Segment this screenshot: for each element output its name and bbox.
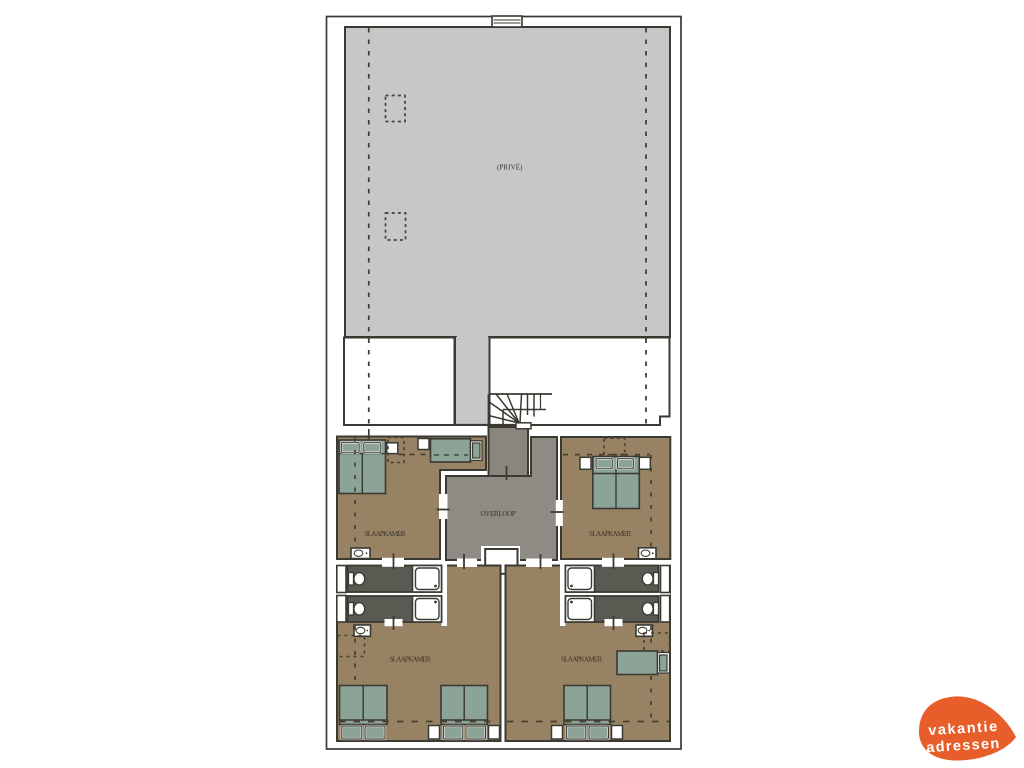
svg-text:SLAAPKAMER: SLAAPKAMER [589,530,632,538]
svg-text:SLAAPKAMER: SLAAPKAMER [390,656,432,664]
svg-text:SLAAPKAMER: SLAAPKAMER [561,656,603,664]
svg-text:(PRIVÉ): (PRIVÉ) [497,164,523,172]
svg-text:SLAAPKAMER: SLAAPKAMER [365,530,407,538]
svg-text:OVERLOOP: OVERLOOP [481,510,517,518]
